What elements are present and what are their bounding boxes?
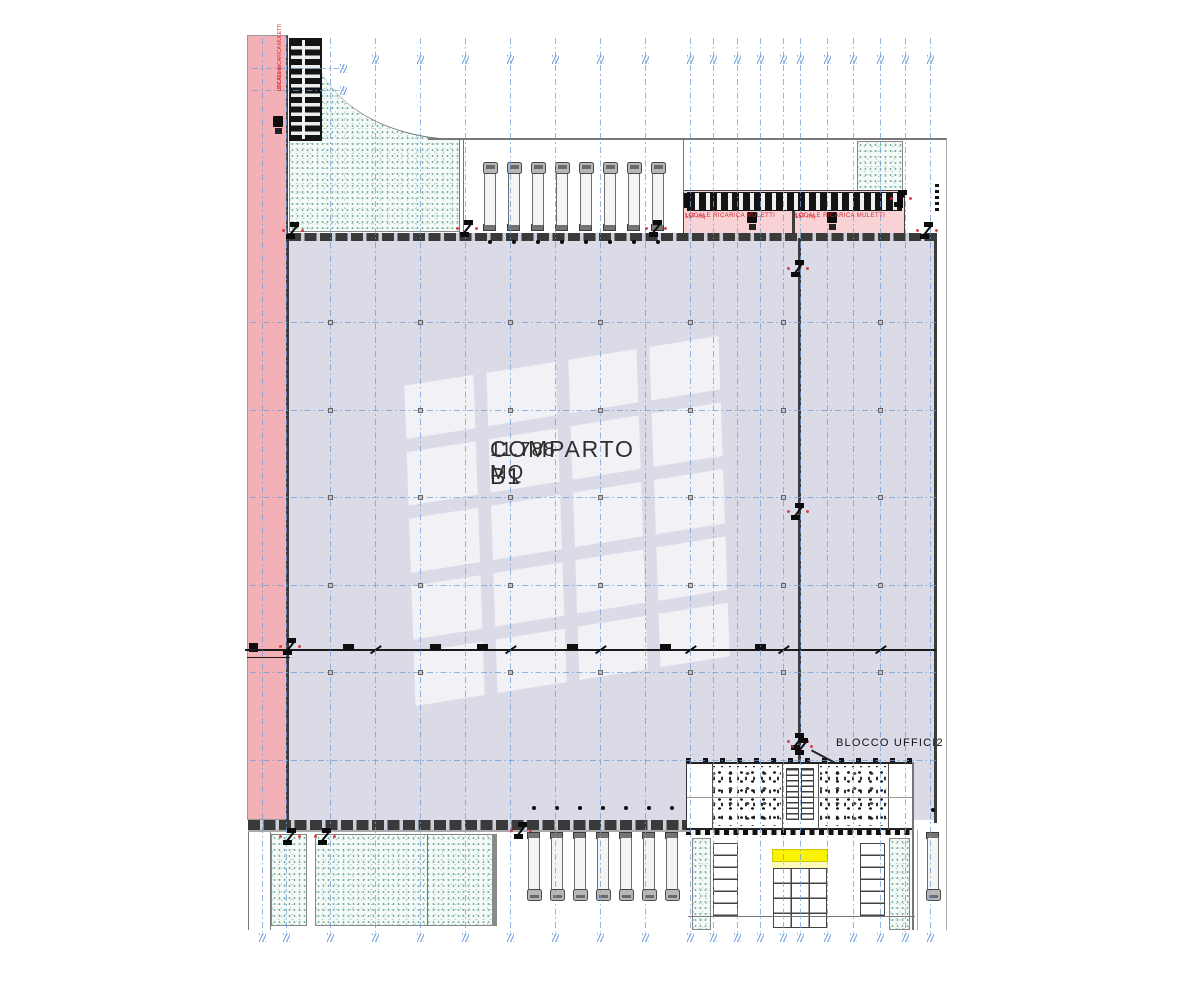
logo-watermark-pane [650,336,721,400]
dock-dot [656,240,660,244]
gridline-vertical-10 [690,38,691,932]
door-marker-dot [664,227,667,230]
charging-room-2-area: 157 mq [795,214,815,221]
grid-terminator-bottom-6 [507,933,514,942]
gridline-horizontal-1 [250,410,938,411]
dock-dot [624,806,628,810]
column-marker [418,320,423,325]
truck-right [925,832,942,904]
grid-terminator-top-11 [710,55,717,64]
dock-dot [488,240,492,244]
door-symbol-12 [920,222,934,240]
column-marker [878,408,883,413]
grid-terminator-top-20 [927,55,934,64]
column-marker [781,495,786,500]
door-symbol-7 [283,638,297,656]
logo-watermark-pane [568,349,639,413]
column-marker [598,583,603,588]
column-marker [688,670,693,675]
battery-rack-horizontal [687,192,902,211]
truck-top-4 [578,162,595,234]
column-marker [688,495,693,500]
office-stair-flight-1 [786,768,799,820]
logo-watermark-pane [577,616,648,680]
door-marker-dot [909,197,912,200]
column-marker [598,495,603,500]
gridline-vertical-19 [905,38,906,932]
office-block-label: BLOCCO UFFICI2 [836,737,944,749]
column-marker [781,320,786,325]
column-marker [781,583,786,588]
office-furniture-cluster-1 [713,766,781,826]
door-symbol-6 [795,738,809,756]
hall-bottom-wall [248,820,686,830]
yard-line-bl-2 [270,830,271,930]
grid-terminator-bottom-4 [417,933,424,942]
column-marker [508,408,513,413]
door-marker-dot [529,829,532,832]
grid-terminator-bottom-18 [877,933,884,942]
column-marker [328,495,333,500]
dock-dot [931,808,935,812]
landscape-divider [427,834,428,926]
column-marker [688,583,693,588]
door-marker-dot [456,227,459,230]
grid-terminator-bottom-1 [283,933,290,942]
door-marker-dot [791,745,794,748]
dock-dot [632,240,636,244]
column-marker [508,670,513,675]
grid-terminator-bottom-17 [850,933,857,942]
dock-dot [512,240,516,244]
door-marker-dot [810,745,813,748]
logo-watermark-pane [657,536,728,600]
truck-cab [550,889,565,901]
grid-terminator-bottom-20 [927,933,934,942]
joint-end-block [249,643,258,652]
grid-terminator-bottom-16 [824,933,831,942]
truck-cab [596,889,611,901]
grid-terminator-top-16 [824,55,831,64]
grid-terminator-bottom-11 [710,933,717,942]
truck-cab [483,162,498,174]
dock-dot [578,806,582,810]
yard-boundary-top [428,138,947,140]
column-marker [878,670,883,675]
door-symbol-0 [286,222,300,240]
dock-dot [536,240,540,244]
grid-terminator-bottom-10 [687,933,694,942]
truck-top-3 [554,162,571,234]
column-marker [328,670,333,675]
door-marker-dot [510,829,513,832]
truck-cab [527,889,542,901]
gridline-horizontal-short-1 [252,90,346,91]
door-symbol-3 [791,260,805,278]
logo-watermark-pane [659,603,730,667]
grid-terminator-top-13 [757,55,764,64]
grid-terminator-left-0 [340,64,347,73]
joint-tick [430,644,441,650]
truck-cab [531,162,546,174]
stair-ladder-right [860,843,885,917]
gridline-vertical-17 [853,38,854,932]
truck-trailer [666,837,678,891]
door-marker-dot [314,835,317,838]
grid-terminator-bottom-14 [780,933,787,942]
grid-terminator-bottom-0 [259,933,266,942]
logo-watermark-pane [491,495,562,559]
stair-ladder-left [713,843,738,917]
grid-terminator-top-9 [642,55,649,64]
truck-bottom-2 [572,832,589,904]
charging-room-1-area: 157 mq [685,214,705,221]
yard-wall-1 [463,139,464,233]
truck-trailer [551,837,563,891]
column-marker [418,583,423,588]
yard-line-bl-1 [248,830,249,930]
logo-watermark-pane [486,362,557,426]
grid-terminator-left-1 [340,86,347,95]
truck-trailer [652,172,664,226]
truck-trailer [628,172,640,226]
truck-cab [651,162,666,174]
column-marker [781,408,786,413]
grid-terminator-bottom-12 [734,933,741,942]
truck-cab [627,162,642,174]
charging-room-side-label: LOCALE RICARICA MULETTI 191.78 mq [277,40,290,141]
truck-trailer [604,172,616,226]
grid-terminator-top-15 [797,55,804,64]
column-marker [508,495,513,500]
door-symbol-8 [283,828,297,846]
gridline-vertical-13 [760,38,761,932]
door-marker-dot [787,510,790,513]
door-marker-dot [279,645,282,648]
column-marker [328,583,333,588]
column-marker [598,320,603,325]
grid-terminator-bottom-5 [462,933,469,942]
truck-trailer [620,837,632,891]
grid-terminator-bottom-2 [327,933,334,942]
charging-room-side-area: 191.78 mq [277,66,283,90]
grid-terminator-bottom-3 [372,933,379,942]
grid-terminator-top-5 [462,55,469,64]
gridline-vertical-15 [800,38,801,932]
door-marker-dot [890,197,893,200]
gridline-vertical-14 [783,38,784,932]
truck-cab [642,889,657,901]
truck-trailer [580,172,592,226]
grid-terminator-top-18 [877,55,884,64]
gridline-vertical-0 [262,38,263,932]
door-marker-dot [298,645,301,648]
door-symbol-11 [894,190,908,208]
truck-cab [573,889,588,901]
gridline-vertical-4 [420,38,421,932]
grid-terminator-top-7 [552,55,559,64]
truck-top-1 [506,162,523,234]
truck-trailer [556,172,568,226]
truck-top-6 [626,162,643,234]
truck-trailer [927,837,939,891]
door-marker-dot [935,229,938,232]
truck-trailer [574,837,586,891]
joint-tick [660,644,671,650]
grid-terminator-top-8 [597,55,604,64]
dock-dot [601,806,605,810]
door-marker-dot [916,229,919,232]
dock-dot [560,240,564,244]
logo-watermark-pane [493,562,564,626]
grid-terminator-bottom-13 [757,933,764,942]
column-marker [418,495,423,500]
column-marker [598,670,603,675]
joint-line-left-short [247,657,290,658]
landscape-edge-thick [492,834,496,926]
landscape-strip-bottomleft [271,834,307,926]
truck-cab [619,889,634,901]
door-marker-dot [298,835,301,838]
column-marker [508,320,513,325]
joint-tick [477,644,488,650]
door-marker-dot [806,510,809,513]
truck-trailer [532,172,544,226]
column-marker [328,320,333,325]
truck-bottom-5 [641,832,658,904]
logo-watermark [394,324,740,717]
column-marker [328,408,333,413]
truck-bottom-0 [526,832,543,904]
dock-dot [647,806,651,810]
door-symbol-1 [460,220,474,238]
grid-terminator-top-6 [507,55,514,64]
door-symbol-9 [318,828,332,846]
compartment-area: 11.788 MQ [490,439,556,485]
truck-bottom-4 [618,832,635,904]
grid-terminator-bottom-8 [597,933,604,942]
door-symbol-2 [649,220,663,238]
landscape-area-bottomleft [315,834,497,926]
grid-terminator-top-3 [372,55,379,64]
truck-trailer [597,837,609,891]
gridline-vertical-1 [286,38,287,932]
edge-hatch-mark [935,184,939,212]
column-marker [418,408,423,413]
logo-watermark-pane [414,641,485,705]
door-marker-dot [279,835,282,838]
gridline-vertical-2 [330,38,331,932]
joint-tick [343,644,354,650]
grid-terminator-bottom-19 [902,933,909,942]
yard-wall-3 [683,139,684,192]
grid-terminator-bottom-7 [552,933,559,942]
column-marker [781,670,786,675]
door-marker-dot [301,229,304,232]
dock-dot [608,240,612,244]
office-right-wall [912,762,914,930]
grid-terminator-top-17 [850,55,857,64]
logo-watermark-pane [575,549,646,613]
column-marker [598,408,603,413]
grid-terminator-bottom-15 [797,933,804,942]
door-symbol-4 [791,503,805,521]
door-marker-dot [787,267,790,270]
truck-top-0 [482,162,499,234]
logo-watermark-pane [572,482,643,546]
column-marker [508,583,513,588]
floor-plan-canvas: COMPARTO B1 11.788 MQ BLOCCO UFFICI2 LOC… [0,0,1200,1000]
gridline-vertical-5 [465,38,466,932]
dock-dot [584,240,588,244]
gridline-vertical-16 [827,38,828,932]
site-edge-right [946,139,947,930]
door-marker-dot [806,267,809,270]
grid-terminator-top-19 [902,55,909,64]
truck-bottom-1 [549,832,566,904]
column-marker [878,583,883,588]
gridline-vertical-12 [737,38,738,932]
truck-cab [507,162,522,174]
gridline-vertical-11 [713,38,714,932]
joint-tick [567,644,578,650]
truck-trailer [528,837,540,891]
gridline-horizontal-2 [250,497,938,498]
dock-dot [670,806,674,810]
truck-bottom-3 [595,832,612,904]
column-marker [688,320,693,325]
truck-top-2 [530,162,547,234]
door-marker-dot [475,227,478,230]
gridline-horizontal-3 [250,585,938,586]
grid-terminator-top-14 [780,55,787,64]
office-stair-flight-2 [801,768,814,820]
truck-top-5 [602,162,619,234]
gridline-horizontal-short-0 [252,68,346,69]
truck-cab [926,889,941,901]
gridline-vertical-3 [375,38,376,932]
truck-cab [603,162,618,174]
door-marker-dot [787,740,790,743]
parking-strip [247,35,288,820]
grid-terminator-top-10 [687,55,694,64]
door-symbol-10 [514,822,528,840]
column-marker [418,670,423,675]
truck-cab [555,162,570,174]
truck-cab [665,889,680,901]
truck-bottom-6 [664,832,681,904]
grid-terminator-top-4 [417,55,424,64]
gridline-vertical-9 [645,38,646,932]
column-marker [688,408,693,413]
hall-top-wall [289,233,937,241]
door-marker-dot [282,229,285,232]
gridline-horizontal-0 [250,322,938,323]
gridline-horizontal-4 [250,672,938,673]
truck-cab [579,162,594,174]
truck-trailer [484,172,496,226]
grid-terminator-top-12 [734,55,741,64]
column-marker [878,320,883,325]
door-marker-dot [645,227,648,230]
door-marker-dot [333,835,336,838]
gridline-vertical-18 [880,38,881,932]
grid-terminator-bottom-9 [642,933,649,942]
column-marker [878,495,883,500]
dock-dot [532,806,536,810]
gridline-vertical-20 [930,38,931,932]
yard-line-br [917,830,918,930]
